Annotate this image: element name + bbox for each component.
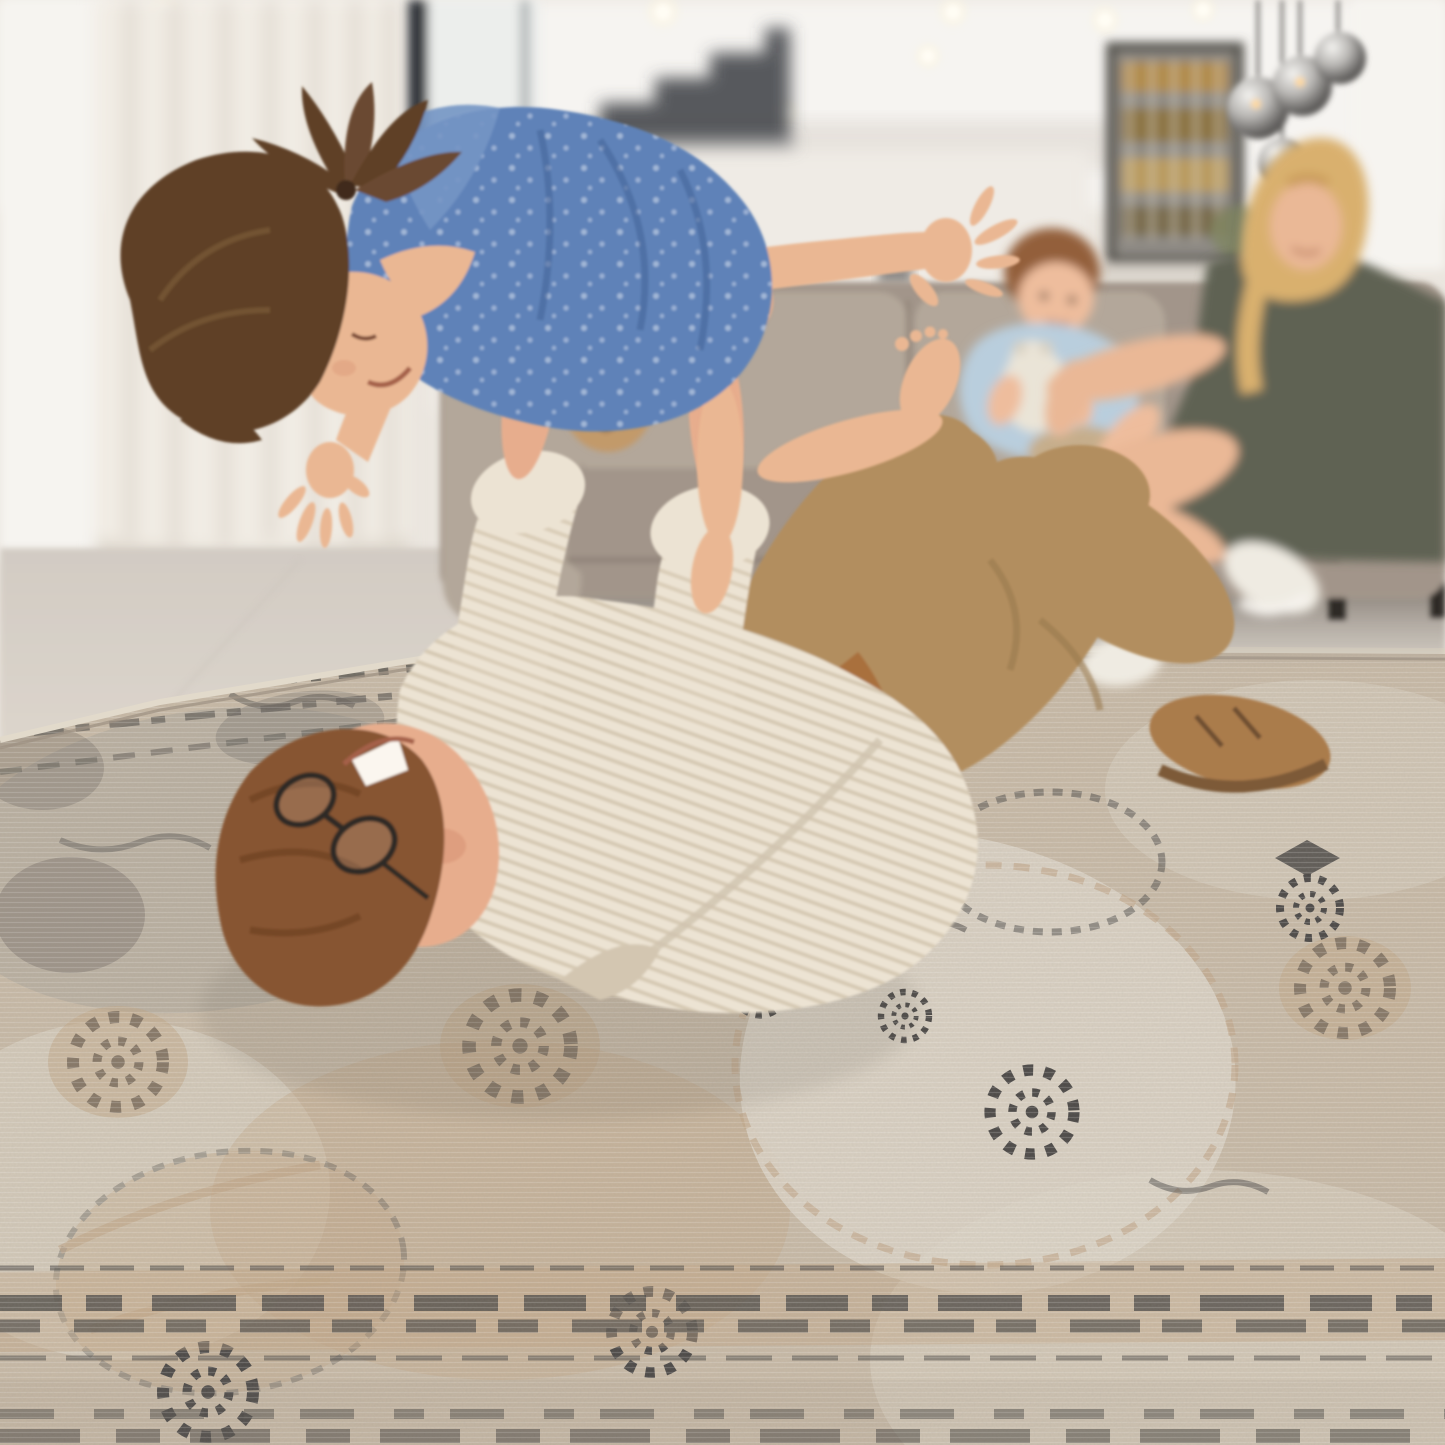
girl-cheek — [332, 360, 356, 376]
pendant-globe — [1314, 32, 1366, 84]
toe — [910, 330, 922, 342]
toe — [938, 329, 948, 339]
toe — [925, 327, 936, 338]
left-pillar — [0, 0, 104, 562]
toddler-eye — [1040, 292, 1048, 300]
hair-tie — [336, 180, 356, 200]
toe — [895, 337, 909, 351]
bottom-vignette — [0, 1380, 1445, 1445]
photo-stage — [0, 0, 1445, 1445]
filament — [1295, 77, 1305, 87]
spotlight — [1087, 2, 1123, 38]
mother-braid — [1248, 280, 1258, 392]
father-knee — [1010, 445, 1150, 545]
mother-face — [1270, 182, 1342, 270]
toddler-eye — [1068, 296, 1076, 304]
spotlight — [912, 40, 944, 72]
filament — [1251, 99, 1261, 109]
living-room-photo — [0, 0, 1445, 1445]
girl-calf — [697, 380, 743, 544]
